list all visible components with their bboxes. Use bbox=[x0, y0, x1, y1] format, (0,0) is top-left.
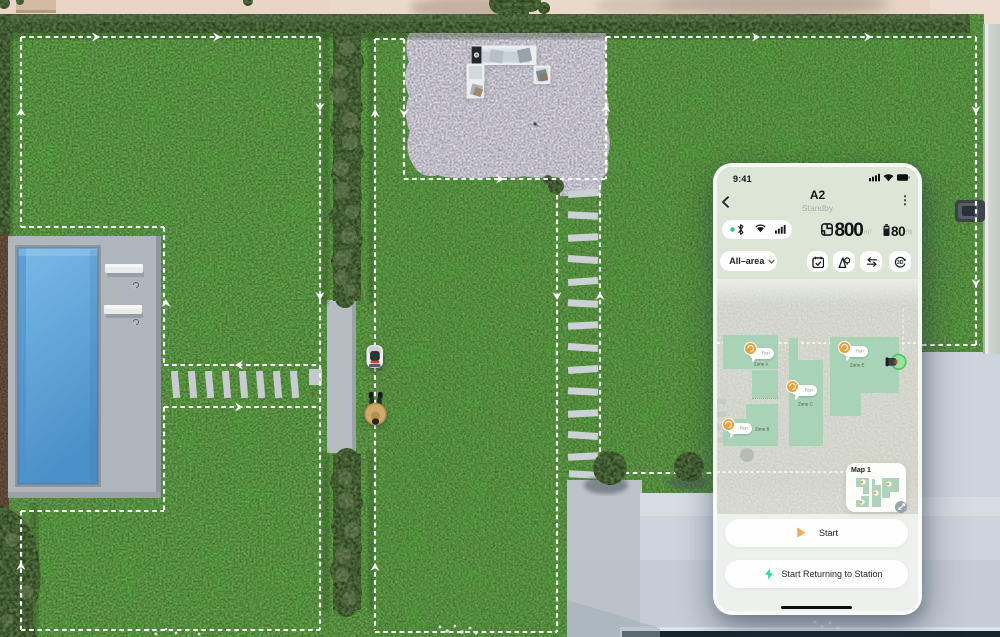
svg-text:3D: 3D bbox=[897, 260, 904, 266]
